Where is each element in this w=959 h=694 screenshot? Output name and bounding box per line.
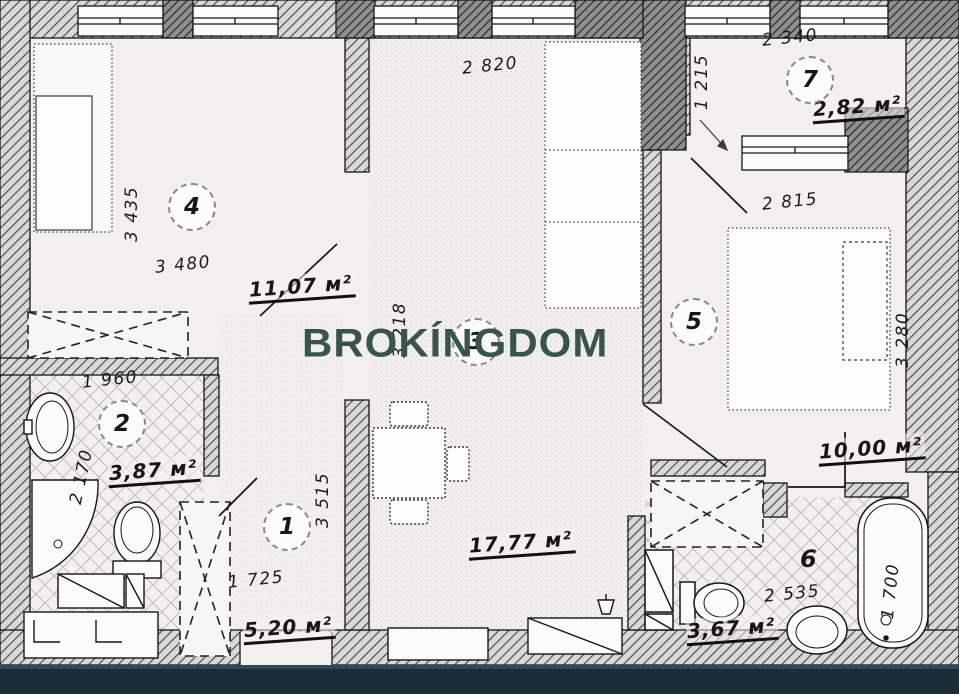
footer-strip	[0, 665, 959, 694]
room2-number: 2	[98, 400, 146, 448]
sink	[787, 606, 847, 654]
room5-number-text: 5	[686, 309, 702, 335]
balcony-window	[742, 136, 848, 170]
room2-number-text: 2	[114, 411, 130, 437]
room7-number-text: 7	[802, 67, 818, 93]
room7-height-dim: 1 215	[692, 54, 712, 110]
cabinet	[24, 612, 158, 658]
room5-number: 5	[670, 298, 718, 346]
room5-height-dim: 3 280	[893, 312, 913, 368]
sofa-room3	[545, 42, 641, 308]
brokingdom-watermark: BROKÍNGDOM	[302, 320, 608, 366]
closet-room4	[28, 312, 188, 358]
closet-hallway	[180, 502, 230, 656]
room1-height-dim: 3 515	[313, 472, 333, 528]
floor-plan-page: 3 435 3 480 11,07 м² 4 2 820 3 218 17,77…	[0, 0, 959, 694]
wardrobe-room4	[34, 44, 112, 232]
room4-number-text: 4	[184, 194, 200, 220]
room7-number: 7	[786, 56, 834, 104]
room4-height-dim: 3 435	[122, 186, 142, 242]
room6-number: 6	[800, 545, 817, 573]
room6-number-text: 6	[800, 545, 817, 573]
room4-number: 4	[168, 183, 216, 231]
room1-number: 1	[263, 503, 311, 551]
toilet	[113, 502, 161, 578]
room1-number-text: 1	[279, 514, 295, 540]
washing-machine	[58, 574, 144, 608]
closet-corridor	[651, 481, 763, 547]
washing-machine	[645, 550, 673, 630]
